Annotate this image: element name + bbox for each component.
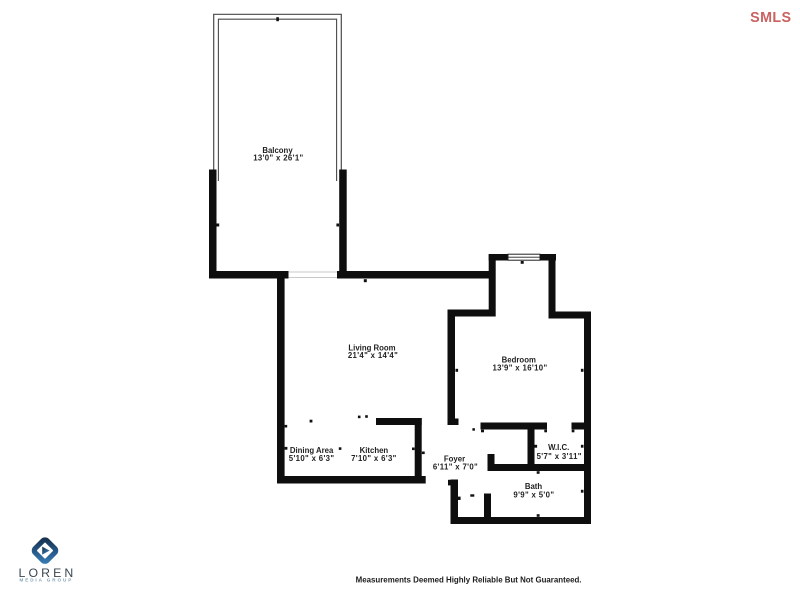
- svg-text:MEDIA GROUP: MEDIA GROUP: [20, 578, 74, 583]
- svg-text:9'9" x 5'0": 9'9" x 5'0": [513, 490, 554, 499]
- svg-text:5'7" x 3'11": 5'7" x 3'11": [537, 452, 582, 461]
- svg-text:6'11" x 7'0": 6'11" x 7'0": [433, 462, 478, 471]
- svg-text:7'10" x 6'3": 7'10" x 6'3": [351, 454, 397, 463]
- svg-text:21'4" x 14'4": 21'4" x 14'4": [348, 351, 398, 360]
- svg-text:5'10" x 6'3": 5'10" x 6'3": [289, 454, 335, 463]
- svg-text:Measurements Deemed Highly Rel: Measurements Deemed Highly Reliable But …: [356, 575, 582, 584]
- svg-text:SMLS: SMLS: [750, 10, 791, 26]
- svg-text:W.I.C.: W.I.C.: [548, 443, 569, 452]
- svg-text:13'9" x 16'10": 13'9" x 16'10": [492, 364, 547, 373]
- svg-text:13'0" x 26'1": 13'0" x 26'1": [253, 153, 303, 162]
